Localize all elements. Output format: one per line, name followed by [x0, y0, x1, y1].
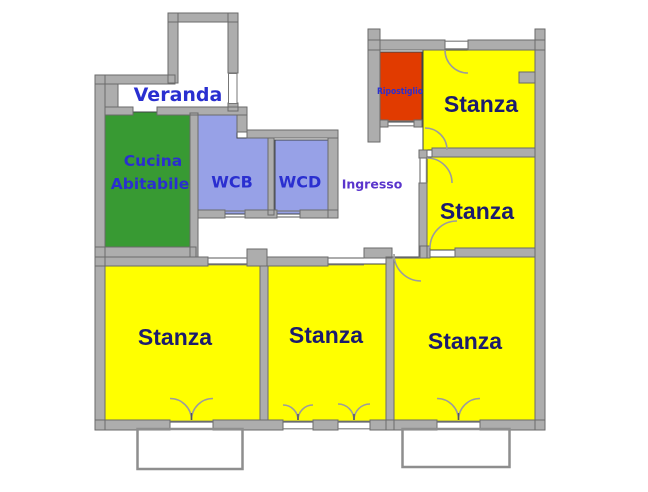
stanza-bottom-left-label: Stanza: [138, 324, 212, 350]
cucina-label-line2: Abitabile: [111, 175, 190, 193]
veranda-window: [229, 74, 238, 104]
wcd-label: WCD: [279, 173, 322, 192]
balcony-left: [138, 429, 243, 469]
stanza-bottom-right-label: Stanza: [428, 328, 502, 354]
veranda-label: Veranda: [134, 84, 223, 106]
stanza-top-right-label: Stanza: [444, 91, 518, 117]
stanza-middle-right-label: Stanza: [440, 198, 514, 224]
stanza-bottom-center-label: Stanza: [289, 322, 363, 348]
ingresso-label: Ingresso: [342, 177, 403, 192]
floor-plan: Veranda Cucina Abitabile WCB WCD Ingress…: [0, 0, 648, 492]
cucina-label-line1: Cucina: [124, 152, 182, 170]
floor-plan-svg: Veranda Cucina Abitabile WCB WCD Ingress…: [0, 0, 648, 492]
ripostiglio-label: Ripostiglio: [377, 87, 423, 97]
wcb-label: WCB: [211, 173, 253, 192]
balcony-right: [403, 429, 510, 467]
